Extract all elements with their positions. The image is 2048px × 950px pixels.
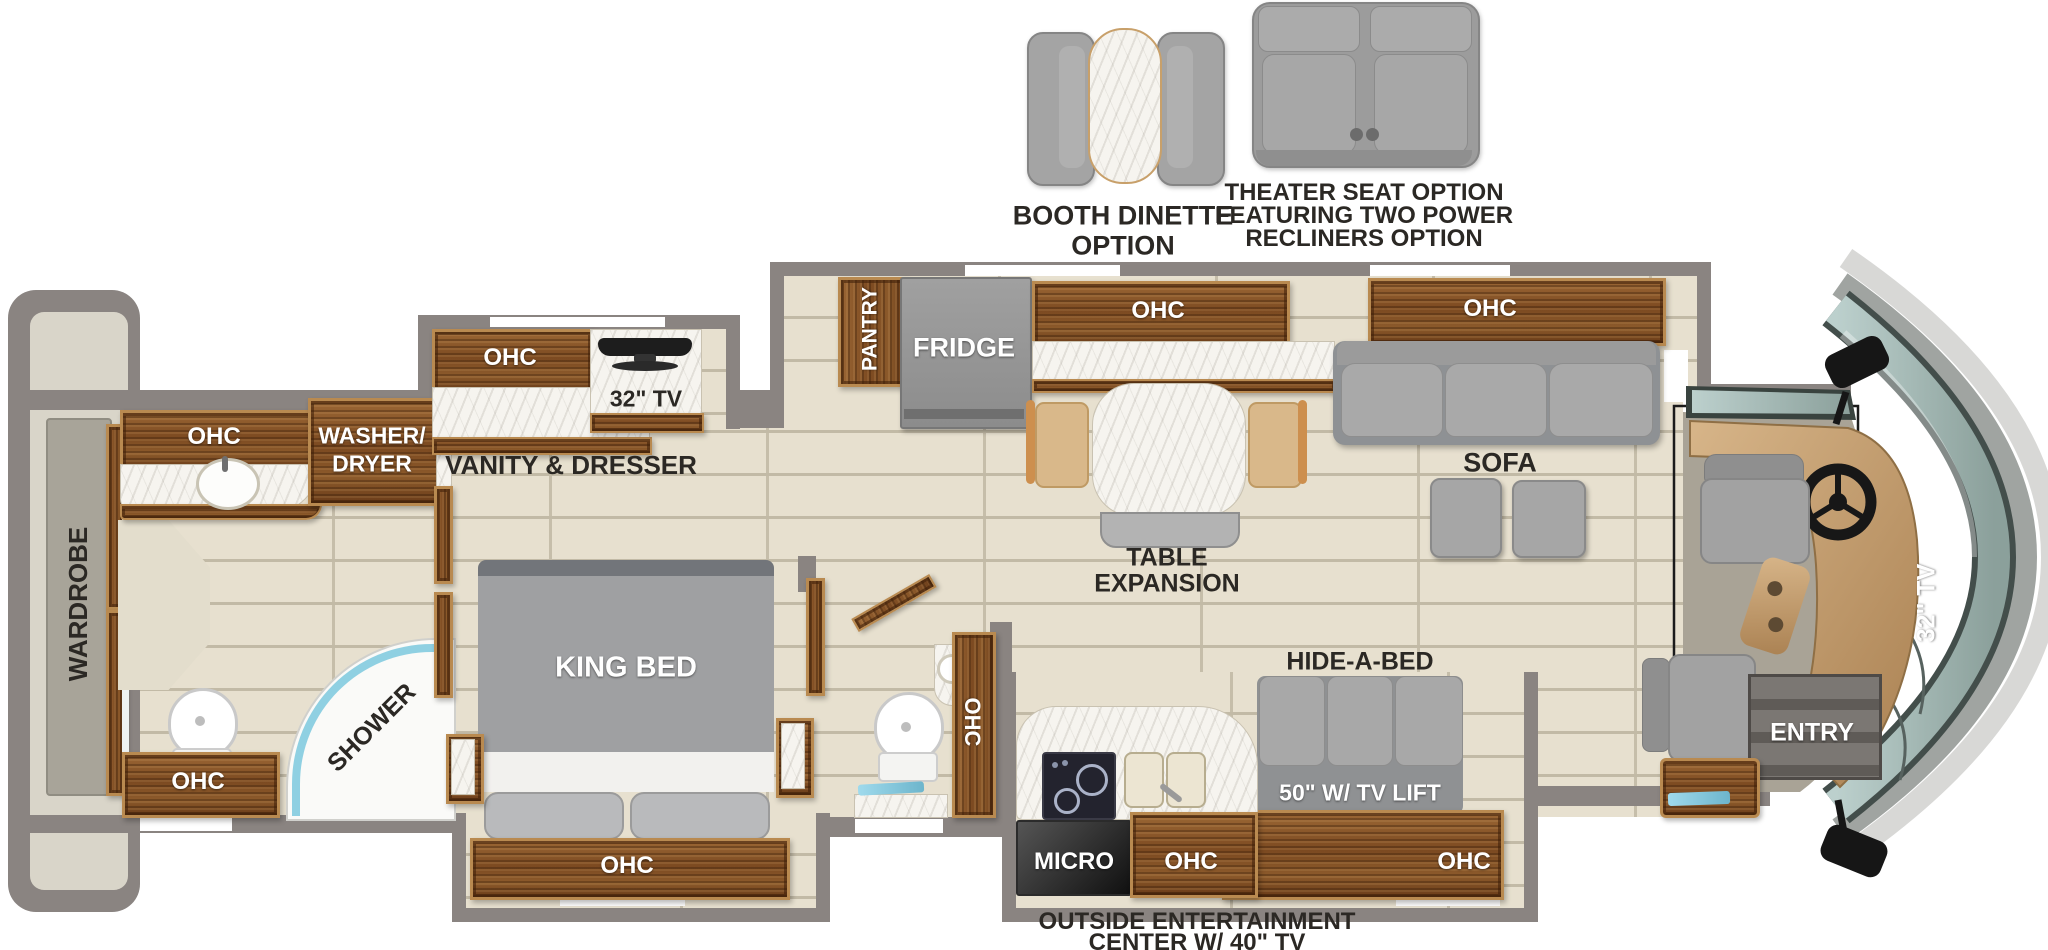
pocket-door (434, 486, 453, 584)
kitchen-ohc-label: OHC (1131, 299, 1184, 323)
sofa-cushion (1341, 363, 1443, 437)
dinette-chair-rail (1026, 400, 1035, 484)
cupholder-icon (1766, 615, 1785, 634)
king-bed-label: KING BED (555, 654, 697, 683)
double-sink (1124, 750, 1206, 808)
bed-slide-ohc-label: OHC (600, 854, 653, 878)
burner-icon (1076, 764, 1108, 796)
knob-icon (1062, 760, 1068, 766)
vanity-dresser-label: VANITY & DRESSER (445, 452, 697, 478)
sofa-cushion (1259, 676, 1325, 766)
cooktop (1042, 752, 1116, 820)
sofa (1333, 341, 1660, 445)
pantry-label: PANTRY (860, 287, 881, 371)
sofa-label: SOFA (1463, 450, 1537, 477)
ottoman (1512, 480, 1586, 558)
driver-seat (1700, 454, 1806, 560)
nightstand (776, 718, 814, 798)
front-tv-label: 32" TV (1915, 564, 1940, 643)
washer-dryer-label-1: WASHER/ (318, 425, 425, 448)
bath-ohc-bottom-label: OHC (171, 770, 224, 794)
pocket-door (434, 592, 453, 698)
cupholder-icon (1765, 579, 1784, 598)
fridge-label: FRIDGE (913, 335, 1015, 362)
dinette-table (1092, 383, 1246, 517)
vanity-ohc-label: OHC (483, 346, 536, 370)
sofa-ohc-label: OHC (1463, 297, 1516, 321)
table-expansion-label-1: TABLE (1126, 546, 1207, 571)
knob-icon (1052, 762, 1058, 768)
washer-dryer-label-2: DRYER (332, 453, 412, 476)
dinette-chair (1035, 402, 1089, 488)
halfbath-ohc-label: OHC (961, 698, 983, 747)
tv-lift-ohc-label: OHC (1437, 850, 1490, 874)
burner-icon (1054, 788, 1080, 814)
bedroom-tv-base-icon (612, 361, 678, 371)
entry-glass-shelf (1668, 791, 1730, 806)
sofa-cushion (1327, 676, 1393, 766)
halfbath-shelf (854, 794, 948, 818)
rv-floor-plan: BOOTH DINETTE OPTION THEATER SEAT OPTION… (0, 0, 2048, 950)
sofa-cushion (1549, 363, 1653, 437)
galley-ohc-label: OHC (1164, 850, 1217, 874)
dinette-chair (1248, 402, 1302, 488)
sofa-cushion (1395, 676, 1463, 766)
halfbath-toilet-tank (878, 752, 938, 782)
bedroom-tv-label: 32" TV (610, 388, 682, 411)
tv-lift-label: 50" W/ TV LIFT (1279, 782, 1441, 805)
dinette-chair-rail (1298, 400, 1307, 484)
hide-a-bed-label: HIDE-A-BED (1286, 650, 1433, 675)
bath-faucet-icon (222, 456, 228, 472)
bath-ohc-top-label: OHC (187, 425, 240, 449)
pillow-icon (484, 792, 624, 840)
outside-entertainment-label-2: CENTER W/ 40" TV (1089, 931, 1306, 950)
halfbath-door (806, 578, 825, 696)
entry-side-table (1660, 758, 1760, 818)
pillow-icon (630, 792, 770, 840)
table-expansion-label-2: EXPANSION (1094, 572, 1239, 597)
entry-label: ENTRY (1770, 721, 1854, 746)
sofa-ohc (1368, 278, 1666, 346)
king-bed (478, 560, 774, 838)
bath-toilet-flush (195, 716, 205, 726)
halfbath-toilet-flush (901, 722, 911, 732)
bedroom-tv-drawer (590, 413, 704, 433)
sofa-cushion (1445, 363, 1547, 437)
passenger-seat (1642, 650, 1754, 760)
bath-sink (196, 458, 260, 510)
nightstand (446, 734, 484, 804)
ottoman (1430, 478, 1502, 558)
microwave-label: MICRO (1034, 850, 1114, 874)
dash-band-glass (1692, 390, 1850, 414)
